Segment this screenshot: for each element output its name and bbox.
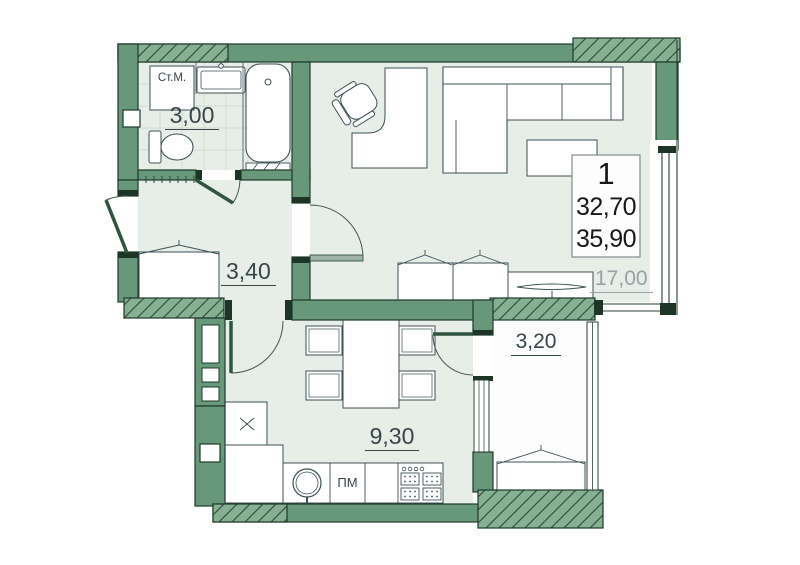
vent-slot-2 xyxy=(202,368,219,382)
kitchen-counter-corner xyxy=(225,445,283,503)
wall-top-hatched-right xyxy=(573,38,680,62)
floor-plan-drawing xyxy=(0,0,800,565)
kitchen-table xyxy=(343,318,399,408)
wall-living-loggia-hatched xyxy=(490,298,595,320)
bathroom-area-label: 3,00 xyxy=(162,103,222,130)
wall-kitchen-loggia-lower xyxy=(473,452,493,492)
loggia-wardrobe xyxy=(497,462,585,492)
hallway-area-label: 3,40 xyxy=(221,259,273,286)
kitchen-loggia-window xyxy=(474,380,489,452)
hallway-wardrobe xyxy=(139,252,219,298)
living-wardrobe-left xyxy=(398,263,453,300)
rooms-count: 1 xyxy=(572,157,640,191)
floor-plan: Ст.М. 3,00 3,40 9,30 3,20 17,00 ПМ 1 32,… xyxy=(0,0,800,565)
toilet-tank xyxy=(149,131,161,163)
vent-box-kitchen xyxy=(200,444,220,462)
kitchen-area-label: 9,30 xyxy=(362,424,422,451)
toilet xyxy=(161,134,193,160)
dishwasher-label: ПМ xyxy=(330,476,365,490)
vent-slot-3 xyxy=(202,387,219,401)
kitchen-sink xyxy=(293,469,321,497)
kitchen-doorway-floor xyxy=(224,298,292,320)
window-sill-band xyxy=(650,140,678,316)
washing-machine-label: Ст.М. xyxy=(151,72,193,84)
sink-faucet-icon xyxy=(219,64,224,69)
vent-slot-1 xyxy=(202,325,219,363)
total-area-value: 35,90 xyxy=(572,223,640,255)
living-area-value: 32,70 xyxy=(572,191,640,223)
living-room-door-leaf xyxy=(310,255,363,261)
wall-kitchen-loggia-upper xyxy=(473,300,493,335)
living-wardrobe-right xyxy=(453,263,508,300)
bathroom-sink-basin xyxy=(201,71,241,89)
wall-loggia-bottom-hatched xyxy=(478,490,603,528)
wall-living-kitchen xyxy=(292,300,490,320)
wall-hallway-bottom-hatched xyxy=(124,298,224,318)
living-room-area-label: 17,00 xyxy=(590,268,652,293)
wall-entrance-lower xyxy=(118,252,138,302)
apartment-info-box: 1 32,70 35,90 xyxy=(572,157,640,255)
wall-kitchen-bottom-hatched xyxy=(213,504,287,522)
entrance-door-leaf xyxy=(106,200,127,253)
vent-box-bathroom xyxy=(123,110,140,127)
wall-living-left-lower xyxy=(292,257,310,302)
loggia-area-label: 3,20 xyxy=(509,331,563,356)
wall-living-left-upper xyxy=(292,62,310,203)
wall-right-pillar xyxy=(656,62,678,150)
wall-bathroom-bottom-left xyxy=(138,170,196,180)
